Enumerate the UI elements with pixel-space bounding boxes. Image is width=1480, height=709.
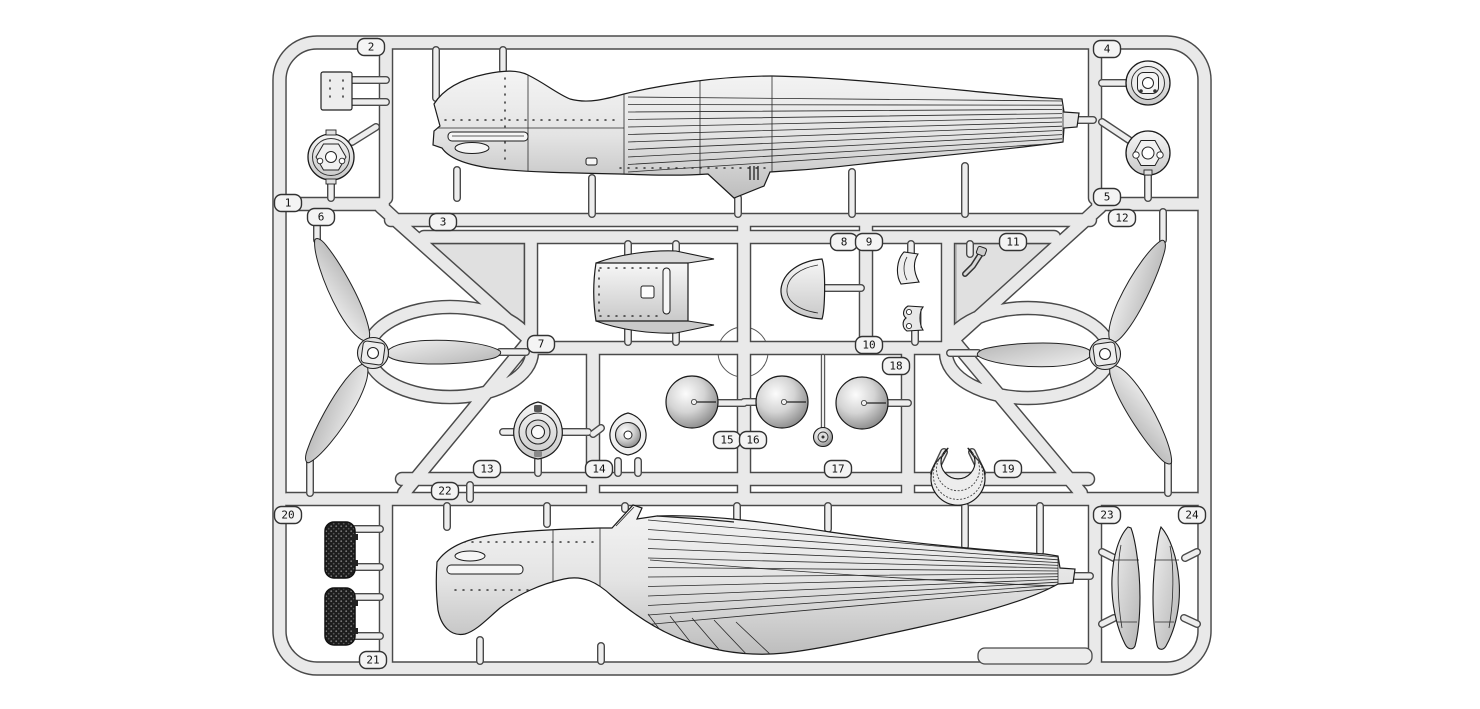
svg-text:18: 18: [889, 360, 902, 373]
part-radiator-grille-20: [325, 522, 358, 578]
part-tag-8: 8: [831, 234, 858, 251]
svg-text:22: 22: [438, 485, 451, 498]
svg-text:4: 4: [1104, 43, 1111, 56]
part-tag-15: 15: [714, 432, 741, 449]
part-cowling-panel: [594, 251, 714, 333]
svg-text:13: 13: [480, 463, 493, 476]
part-tag-3: 3: [430, 214, 457, 231]
part-hub-cap: [814, 428, 833, 447]
part-tag-22: 22: [432, 483, 459, 500]
svg-text:2: 2: [368, 41, 375, 54]
svg-text:5: 5: [1104, 191, 1111, 204]
svg-text:16: 16: [746, 434, 759, 447]
svg-text:20: 20: [281, 509, 294, 522]
part-cowl-flap-half-ring: [781, 259, 825, 319]
part-radiator-grille-21: [325, 588, 358, 645]
part-reduction-gear-housing: [514, 402, 563, 459]
part-tag-6: 6: [308, 209, 335, 226]
part-cowl-ring: [308, 130, 354, 184]
svg-text:24: 24: [1185, 509, 1199, 522]
svg-text:11: 11: [1006, 236, 1019, 249]
svg-text:7: 7: [538, 338, 545, 351]
part-tag-4: 4: [1094, 41, 1121, 58]
part-hub-housing: [610, 413, 646, 455]
svg-text:15: 15: [720, 434, 733, 447]
sprue-diagram: 1 2 3 4 5 6 7 8 9 10 11 12 13 14 15 16 1…: [0, 0, 1480, 709]
svg-text:23: 23: [1100, 509, 1113, 522]
svg-text:19: 19: [1001, 463, 1014, 476]
svg-text:12: 12: [1115, 212, 1128, 225]
part-tag-24: 24: [1179, 507, 1206, 524]
part-tag-1: 1: [275, 195, 302, 212]
part-spinner-dome-18: [836, 377, 888, 429]
svg-text:6: 6: [318, 211, 325, 224]
part-tag-10: 10: [856, 337, 883, 354]
part-tag-21: 21: [360, 652, 387, 669]
svg-text:9: 9: [866, 236, 873, 249]
svg-text:8: 8: [841, 236, 848, 249]
part-access-panel: [321, 72, 352, 110]
svg-text:1: 1: [285, 197, 292, 210]
part-fuselage-half-upper: [433, 71, 1079, 198]
part-tag-7: 7: [528, 336, 555, 353]
part-tag-5: 5: [1094, 189, 1121, 206]
part-tag-14: 14: [586, 461, 613, 478]
part-bracket: [897, 252, 919, 284]
svg-text:21: 21: [366, 654, 379, 667]
part-tag-17: 17: [825, 461, 852, 478]
svg-text:17: 17: [831, 463, 844, 476]
part-tag-13: 13: [474, 461, 501, 478]
part-tag-12: 12: [1109, 210, 1136, 227]
part-exhaust-fairing-23: [1112, 527, 1140, 649]
part-spinner-dome-16: [756, 376, 808, 428]
part-engine-front-disc: [1126, 61, 1170, 105]
part-tag-19: 19: [995, 461, 1022, 478]
part-tag-9: 9: [856, 234, 883, 251]
part-tag-11: 11: [1000, 234, 1027, 251]
svg-text:3: 3: [440, 216, 447, 229]
part-spinner-dome-15: [666, 376, 718, 428]
part-tag-20: 20: [275, 507, 302, 524]
svg-text:10: 10: [862, 339, 875, 352]
part-fuselage-half-lower: [436, 505, 1075, 662]
part-tag-23: 23: [1094, 507, 1121, 524]
part-tag-16: 16: [740, 432, 767, 449]
part-firewall-disc: [1126, 131, 1170, 175]
part-clamp-yoke: [903, 306, 923, 331]
part-tag-18: 18: [883, 358, 910, 375]
model-kit-sprue-illustration: 1 2 3 4 5 6 7 8 9 10 11 12 13 14 15 16 1…: [0, 0, 1480, 709]
svg-text:14: 14: [592, 463, 606, 476]
part-exhaust-fairing-24: [1153, 527, 1179, 649]
part-tag-2: 2: [358, 39, 385, 56]
label-plate: [978, 648, 1092, 664]
